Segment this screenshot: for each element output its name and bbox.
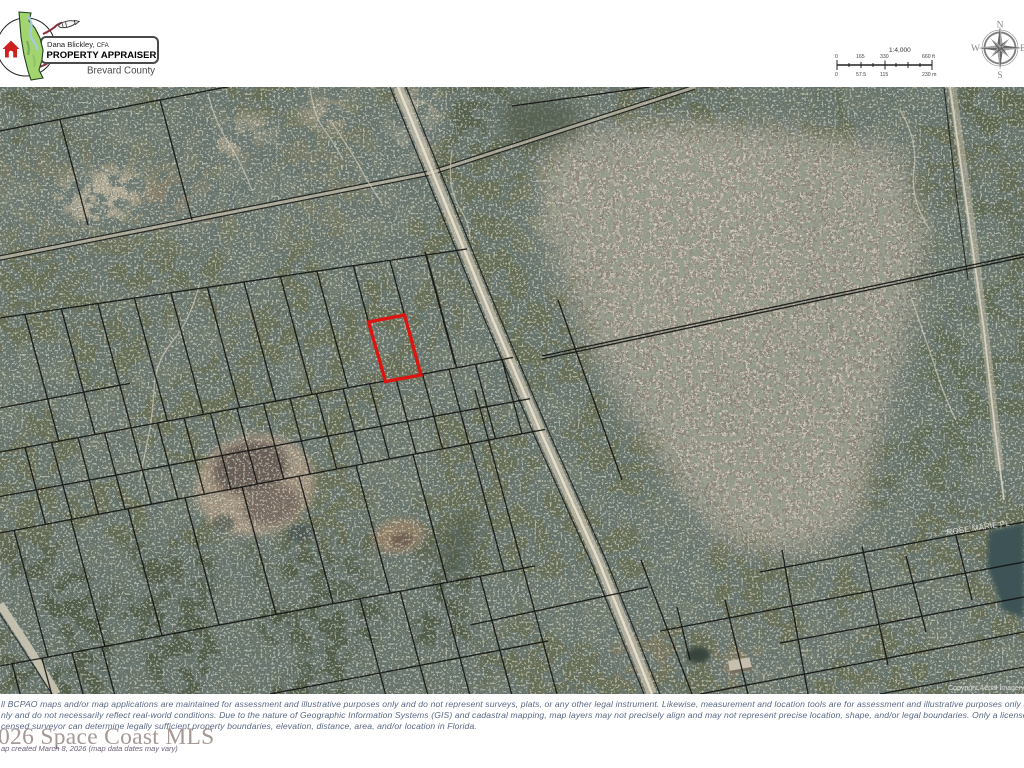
svg-text:230 m: 230 m	[922, 72, 936, 78]
svg-text:57.5: 57.5	[856, 72, 866, 78]
svg-text:Brevard County: Brevard County	[87, 66, 155, 77]
svg-text:W: W	[971, 44, 980, 54]
svg-text:0: 0	[835, 54, 838, 60]
svg-text:N: N	[997, 21, 1004, 31]
svg-text:Dana Blickley, CFA: Dana Blickley, CFA	[47, 40, 110, 49]
svg-text:S: S	[997, 71, 1002, 81]
svg-text:660 ft: 660 ft	[922, 54, 936, 60]
svg-text:0: 0	[835, 72, 838, 78]
svg-text:330: 330	[880, 54, 889, 60]
svg-text:Copyright Aerial Imagery: Copyright Aerial Imagery	[948, 685, 1024, 692]
svg-text:E: E	[1020, 44, 1024, 54]
svg-text:1:4,000: 1:4,000	[889, 47, 911, 54]
svg-text:165: 165	[856, 54, 865, 60]
svg-text:115: 115	[880, 72, 888, 78]
svg-text:PROPERTY APPRAISER: PROPERTY APPRAISER	[47, 50, 157, 61]
